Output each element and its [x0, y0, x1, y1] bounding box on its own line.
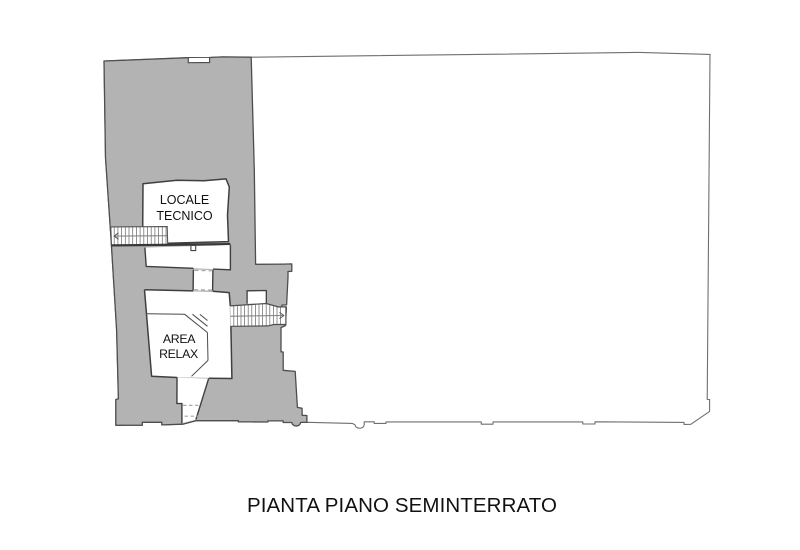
svg-text:LOCALE: LOCALE — [160, 193, 209, 207]
svg-text:PIANTA PIANO SEMINTERRATO: PIANTA PIANO SEMINTERRATO — [247, 494, 557, 517]
svg-text:TECNICO: TECNICO — [156, 209, 213, 223]
svg-text:AREA: AREA — [163, 332, 196, 346]
svg-text:RELAX: RELAX — [159, 347, 198, 361]
